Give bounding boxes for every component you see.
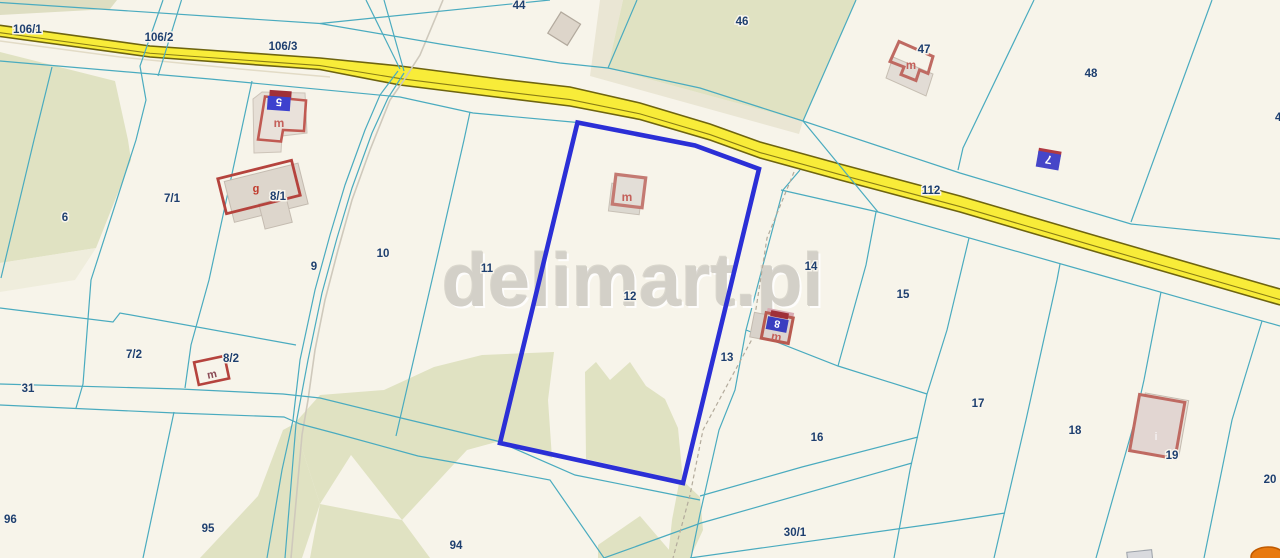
svg-text:46: 46 (736, 16, 749, 28)
svg-text:14: 14 (805, 261, 818, 273)
svg-text:13: 13 (721, 352, 734, 364)
svg-text:7/1: 7/1 (164, 193, 181, 205)
svg-text:5: 5 (275, 95, 282, 107)
svg-text:31: 31 (22, 383, 35, 395)
svg-text:6: 6 (62, 212, 68, 224)
svg-text:106/1: 106/1 (13, 24, 42, 36)
svg-text:47: 47 (918, 44, 931, 56)
svg-text:20: 20 (1264, 474, 1277, 486)
svg-text:49: 49 (1275, 112, 1280, 124)
svg-text:12: 12 (624, 291, 637, 303)
svg-text:106/2: 106/2 (145, 32, 174, 44)
svg-text:10: 10 (377, 248, 390, 260)
svg-text:16: 16 (811, 432, 824, 444)
svg-text:17: 17 (972, 398, 985, 410)
svg-text:7/2: 7/2 (126, 349, 142, 361)
svg-text:11: 11 (481, 263, 494, 275)
svg-text:106/3: 106/3 (269, 41, 298, 53)
svg-text:delimart.pl: delimart.pl (442, 238, 824, 322)
svg-text:112: 112 (922, 185, 941, 197)
svg-text:19: 19 (1166, 450, 1179, 462)
svg-text:48: 48 (1085, 68, 1098, 80)
svg-text:94: 94 (450, 540, 463, 552)
svg-text:g: g (253, 183, 260, 195)
svg-text:m: m (906, 60, 916, 72)
svg-text:15: 15 (897, 289, 910, 301)
svg-text:30/1: 30/1 (784, 527, 807, 539)
svg-text:i: i (1154, 431, 1157, 443)
svg-text:9: 9 (311, 261, 317, 273)
svg-text:44: 44 (513, 0, 526, 12)
svg-text:96: 96 (4, 514, 17, 526)
svg-text:95: 95 (202, 523, 215, 535)
svg-text:m: m (274, 116, 285, 130)
svg-text:m: m (622, 190, 633, 204)
svg-text:8/2: 8/2 (223, 353, 239, 365)
svg-text:18: 18 (1069, 425, 1082, 437)
svg-text:8/1: 8/1 (270, 191, 287, 203)
